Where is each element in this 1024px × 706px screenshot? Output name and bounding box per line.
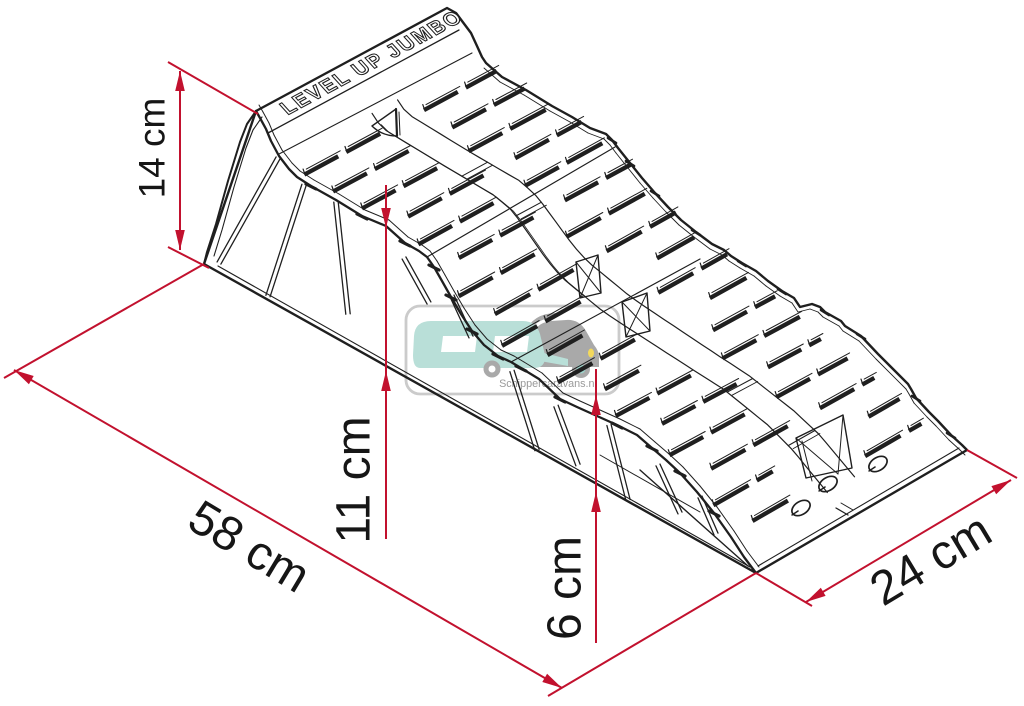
svg-text:11 cm: 11 cm (328, 416, 381, 543)
svg-text:14 cm: 14 cm (132, 98, 173, 199)
svg-text:6 cm: 6 cm (539, 536, 592, 640)
